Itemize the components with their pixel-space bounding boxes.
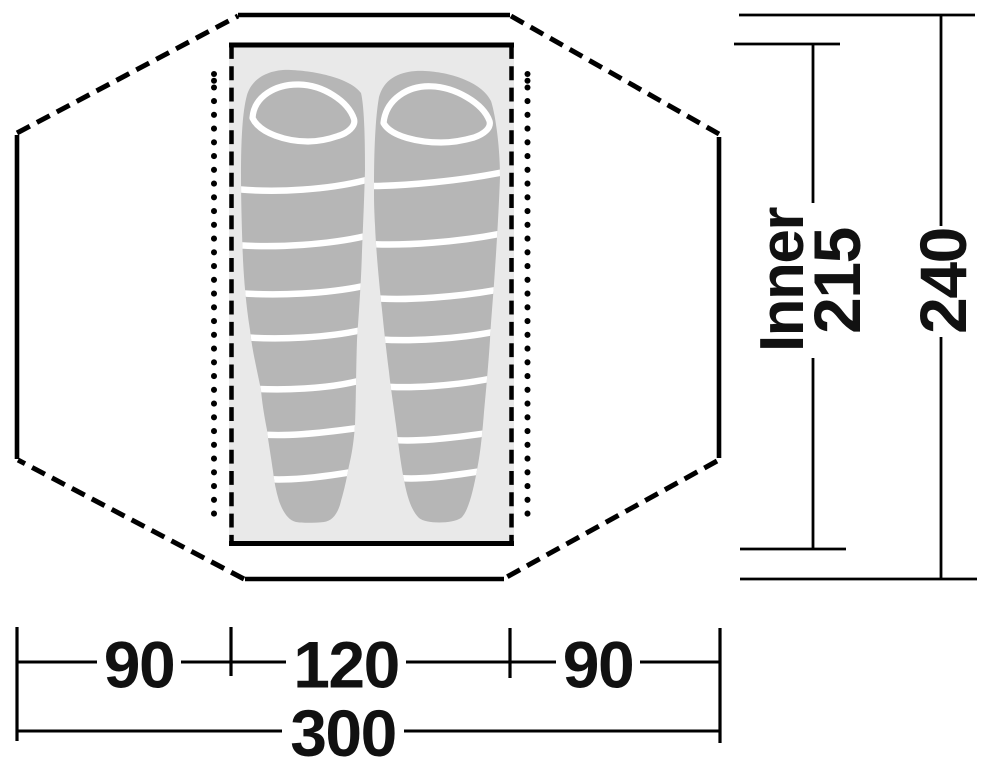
svg-text:300: 300 (290, 696, 396, 768)
svg-text:90: 90 (104, 628, 174, 702)
svg-text:240: 240 (906, 228, 980, 334)
svg-text:120: 120 (293, 628, 399, 702)
svg-text:90: 90 (563, 628, 633, 702)
svg-text:215: 215 (800, 228, 874, 334)
